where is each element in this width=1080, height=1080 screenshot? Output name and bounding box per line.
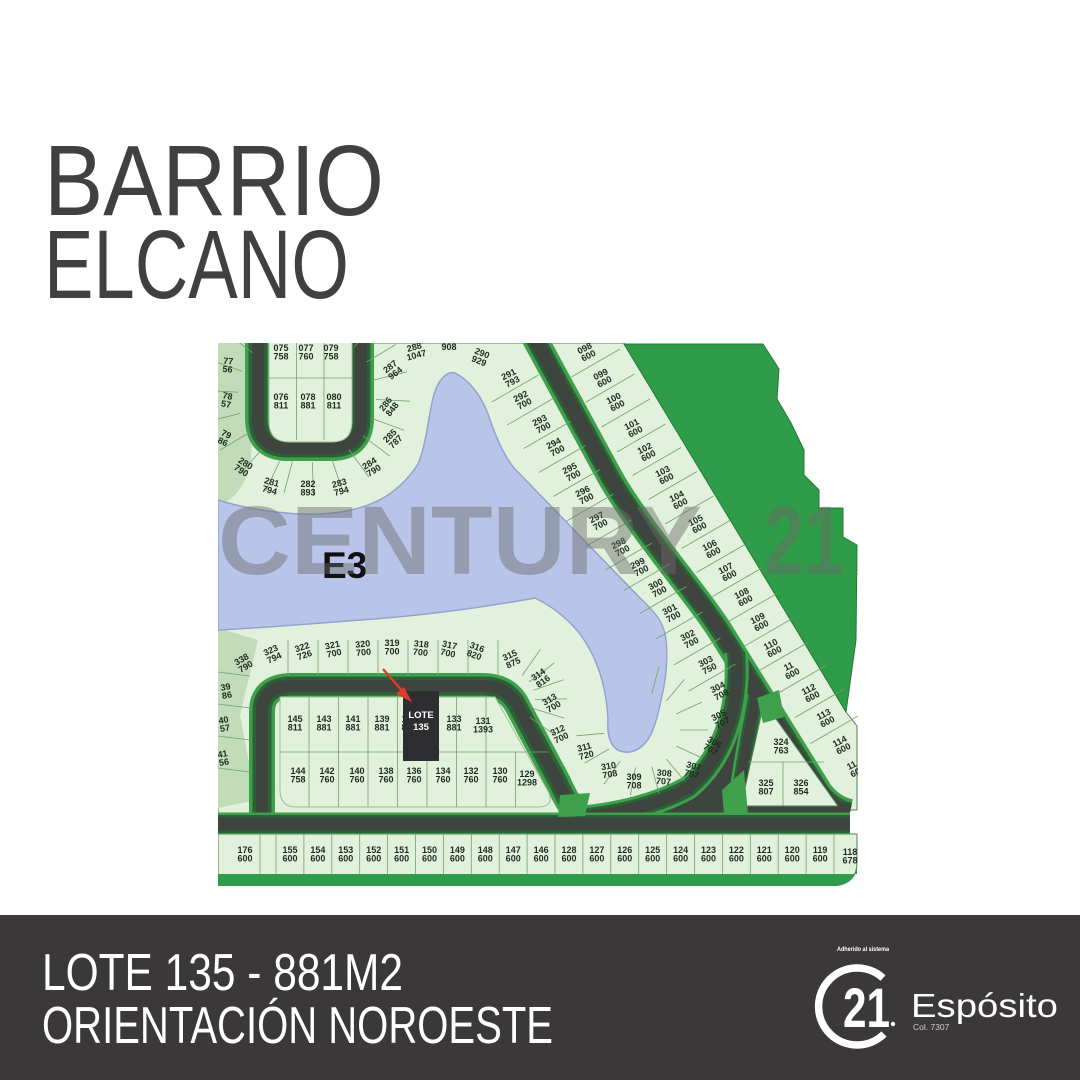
svg-text:139881: 139881: [374, 714, 389, 732]
svg-text:155600: 155600: [282, 845, 297, 863]
svg-text:127600: 127600: [589, 845, 604, 863]
svg-text:152600: 152600: [366, 845, 381, 863]
svg-text:150600: 150600: [422, 845, 437, 863]
svg-text:Espósito: Espósito: [911, 987, 1058, 1024]
svg-text:21: 21: [764, 486, 844, 595]
svg-text:141881: 141881: [345, 714, 360, 732]
svg-text:075758: 075758: [273, 343, 288, 361]
svg-text:077760: 077760: [298, 343, 313, 361]
svg-text:908: 908: [441, 342, 456, 352]
svg-text:319700: 319700: [384, 638, 399, 656]
svg-text:120600: 120600: [785, 845, 800, 863]
svg-text:324763: 324763: [773, 737, 788, 755]
svg-text:151600: 151600: [394, 845, 409, 863]
svg-text:134760: 134760: [435, 766, 450, 784]
svg-text:136760: 136760: [406, 766, 421, 784]
svg-text:147600: 147600: [506, 845, 521, 863]
svg-text:144758: 144758: [290, 766, 305, 784]
svg-text:153600: 153600: [338, 845, 353, 863]
svg-text:145811: 145811: [287, 714, 302, 732]
svg-text:126600: 126600: [617, 845, 632, 863]
svg-text:309708: 309708: [626, 772, 641, 790]
svg-text:132760: 132760: [463, 766, 478, 784]
svg-text:146600: 146600: [534, 845, 549, 863]
svg-text:ORIENTACIÓN NOROESTE: ORIENTACIÓN NOROESTE: [42, 997, 553, 1055]
svg-text:121600: 121600: [757, 845, 772, 863]
svg-text:7756: 7756: [222, 356, 234, 375]
svg-text:118678: 118678: [842, 847, 857, 865]
svg-text:325807: 325807: [758, 778, 773, 796]
svg-text:1311393: 1311393: [473, 716, 493, 734]
svg-text:320700: 320700: [355, 638, 372, 658]
svg-text:Col. 7307: Col. 7307: [913, 1022, 950, 1032]
svg-text:122600: 122600: [729, 845, 744, 863]
svg-text:ELCANO: ELCANO: [44, 210, 349, 319]
svg-text:149600: 149600: [450, 845, 465, 863]
svg-text:143881: 143881: [316, 714, 331, 732]
svg-text:1291298: 1291298: [517, 769, 537, 787]
svg-text:154600: 154600: [310, 845, 325, 863]
svg-text:310708: 310708: [600, 760, 618, 781]
svg-text:135: 135: [413, 722, 430, 733]
svg-text:123600: 123600: [701, 845, 716, 863]
svg-text:125600: 125600: [645, 845, 660, 863]
svg-text:176600: 176600: [237, 845, 252, 863]
svg-text:LOTE 135 - 881M2: LOTE 135 - 881M2: [42, 944, 403, 1002]
svg-text:079758: 079758: [323, 343, 338, 361]
svg-text:138760: 138760: [378, 766, 393, 784]
svg-text:124600: 124600: [673, 845, 688, 863]
svg-text:130760: 130760: [492, 766, 507, 784]
svg-text:308707: 308707: [656, 767, 673, 787]
svg-text:CENTURY: CENTURY: [218, 486, 702, 595]
svg-text:133881: 133881: [446, 714, 461, 732]
svg-text:318700: 318700: [412, 638, 429, 658]
svg-text:21: 21: [843, 976, 890, 1039]
svg-text:128600: 128600: [561, 845, 576, 863]
svg-text:076811: 076811: [273, 392, 288, 410]
svg-text:119600: 119600: [813, 845, 828, 863]
svg-text:LOTE: LOTE: [408, 710, 433, 721]
svg-text:080811: 080811: [326, 392, 341, 410]
svg-text:326854: 326854: [793, 778, 808, 796]
svg-text:148600: 148600: [478, 845, 493, 863]
svg-text:140760: 140760: [349, 766, 364, 784]
svg-text:078881: 078881: [300, 392, 315, 410]
svg-text:Adherido al sistema: Adherido al sistema: [837, 947, 890, 953]
svg-text:142760: 142760: [319, 766, 334, 784]
